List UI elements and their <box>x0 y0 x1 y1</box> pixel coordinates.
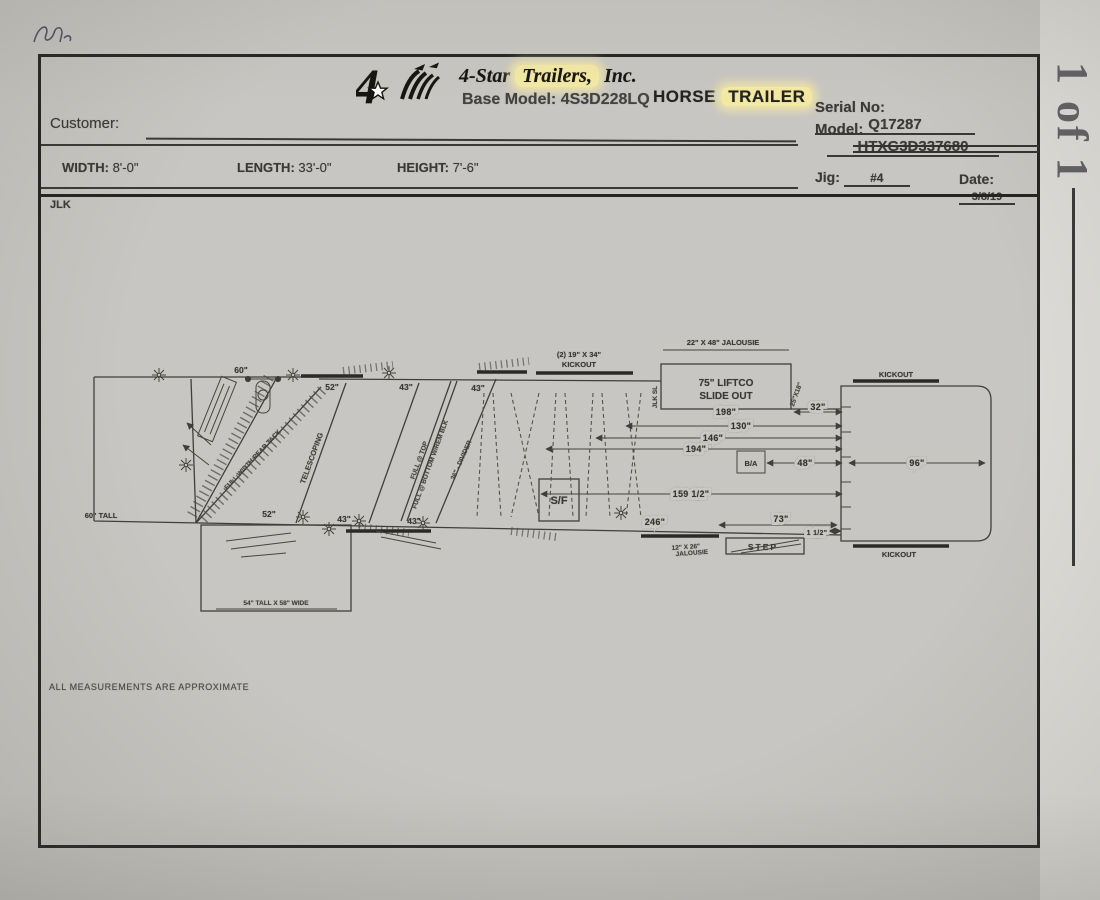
logo-numeral-4: 4 <box>356 61 379 109</box>
front-height-label: 60" TALL <box>85 511 118 520</box>
kickout-front-label-2: KICKOUT <box>562 360 597 369</box>
jack-bolt-right <box>275 376 280 381</box>
slideout-label-2: SLIDE OUT <box>699 391 752 402</box>
jalousie-bottom-label-2: JALOUSIE <box>675 549 709 558</box>
customer-row: Customer: <box>50 115 119 132</box>
dim-label-32: 32" <box>810 402 825 412</box>
trailer-floor-plan: 198" 32" 130" 146" 194" 48" 96" 159 1/2"… <box>41 197 1037 845</box>
divider3-label: 36" - DIVIDER <box>450 439 474 481</box>
pointer-arrow-1 <box>187 423 211 445</box>
model-label: Model: <box>815 121 863 138</box>
company-name: 4-Star Trailers, Inc. <box>459 65 637 88</box>
stall2-top-label: 43" <box>399 382 413 392</box>
dim-label-96: 96" <box>909 458 924 468</box>
length-field: LENGTH: 33'-0" <box>237 160 332 175</box>
logo-flag-2 <box>429 63 439 69</box>
light-symbols <box>152 366 628 536</box>
stall2-bottom-label: 43" <box>337 514 351 524</box>
dim-label-48: 48" <box>797 458 812 468</box>
dims-underline <box>41 187 798 189</box>
date-label: Date: <box>959 171 994 187</box>
top-edge-left <box>319 379 661 381</box>
sheet-number: 1 of 1 <box>1044 62 1098 212</box>
front-width-label: 60" <box>234 365 248 375</box>
light-burst-icon <box>614 506 628 520</box>
company-name-highlighted: Trailers, <box>515 65 599 87</box>
customer-label: Customer: <box>50 115 119 132</box>
light-burst-icon <box>352 514 366 528</box>
height-field: HEIGHT: 7'-6" <box>397 160 479 175</box>
jig-label: Jig: <box>815 169 840 185</box>
stall1-bottom-label: 52" <box>262 509 276 519</box>
divider-telescoping-line <box>296 383 346 523</box>
ba-label: B/A <box>745 459 759 468</box>
company-name-post: Inc. <box>599 65 637 87</box>
jack-bolt-left <box>245 376 250 381</box>
dim-label-1half: 1 1/2" <box>807 530 828 537</box>
handwritten-mark <box>26 14 90 52</box>
stall3-top-label: 43" <box>471 383 485 393</box>
length-label: LENGTH: <box>237 160 295 175</box>
sf-label: S/F <box>550 495 567 507</box>
divider-full-line <box>401 381 457 521</box>
slideout-left-note: JLK SL <box>652 386 659 408</box>
pointer-arrow-2 <box>183 445 209 465</box>
four-star-logo: 4 <box>356 61 456 109</box>
dress-door-box <box>201 525 351 611</box>
slideout-label-1: 75" LIFTCO <box>699 378 754 389</box>
base-model-row: Base Model: 4S3D228LQ <box>462 91 650 109</box>
company-name-pre: 4-Star <box>459 65 515 87</box>
divider1-label: TELESCOPING <box>298 431 325 485</box>
tack-note-label: FULL WIDTH REAR TACK <box>223 428 282 491</box>
dress-box-label: 54" TALL X 58" WIDE <box>243 600 309 607</box>
stall1-top-label: 52" <box>325 382 339 392</box>
kickout-rear-top-label: KICKOUT <box>879 370 914 379</box>
logo-tread-marks <box>402 71 439 99</box>
light-burst-icon <box>286 368 300 382</box>
rear-wall-ticks <box>841 407 851 529</box>
jig-field: Jig: #4 <box>815 169 910 187</box>
light-burst-icon <box>382 366 396 380</box>
logo-flag-1 <box>414 64 425 71</box>
dim-label-73: 73" <box>773 514 788 524</box>
scan-artifact-line <box>1072 188 1075 566</box>
serial-label: Serial No: <box>815 99 885 116</box>
dim-label-146: 146" <box>703 433 723 443</box>
label-plate-rect <box>198 376 237 441</box>
width-label: WIDTH: <box>62 160 109 175</box>
light-burst-icon <box>322 522 336 536</box>
light-burst-icon <box>152 368 166 382</box>
dim-label-246: 246" <box>645 517 665 527</box>
customer-underline <box>146 138 796 143</box>
trailer-type-highlighted: TRAILER <box>721 87 812 106</box>
kickout-rear-bottom-label: KICKOUT <box>882 550 917 559</box>
header-divider-line <box>41 144 798 146</box>
width-value: 8'-0" <box>113 160 139 175</box>
handwriting-stroke <box>34 27 71 42</box>
measurements-note: ALL MEASUREMENTS ARE APPROXIMATE <box>49 682 249 692</box>
model-double-underline <box>853 145 1039 153</box>
kickout-front-label-1: (2) 19" X 34" <box>557 350 602 359</box>
height-label: HEIGHT: <box>397 160 449 175</box>
trailer-type: HORSE TRAILER <box>653 87 812 107</box>
length-value: 33'-0" <box>298 160 331 175</box>
dim-label-198: 198" <box>716 407 736 417</box>
divider-2-line <box>369 383 419 523</box>
dress-box-hatch <box>226 533 296 557</box>
width-field: WIDTH: 8'-0" <box>62 160 138 175</box>
light-burst-icon <box>179 458 193 472</box>
base-model-label: Base Model: <box>462 91 556 108</box>
jalousie-top-label: 22" X 48" JALOUSIE <box>687 338 760 347</box>
step-label: STEP <box>748 542 778 552</box>
light-burst-icon <box>296 510 310 524</box>
jig-value: #4 <box>844 171 910 187</box>
height-value: 7'-6" <box>453 160 479 175</box>
stall3-bottom-label: 43" <box>407 516 421 526</box>
trailer-type-word: HORSE <box>653 87 716 106</box>
dim-label-130: 130" <box>731 421 751 431</box>
spec-sheet: 4 4-Star Trailers, Inc. Base Model: 4S3D… <box>38 54 1040 848</box>
base-model-value: 4S3D228LQ <box>561 91 650 108</box>
dim-label-194: 194" <box>686 444 706 454</box>
dim-label-159: 159 1/2" <box>673 489 710 499</box>
label-plate <box>198 376 237 441</box>
